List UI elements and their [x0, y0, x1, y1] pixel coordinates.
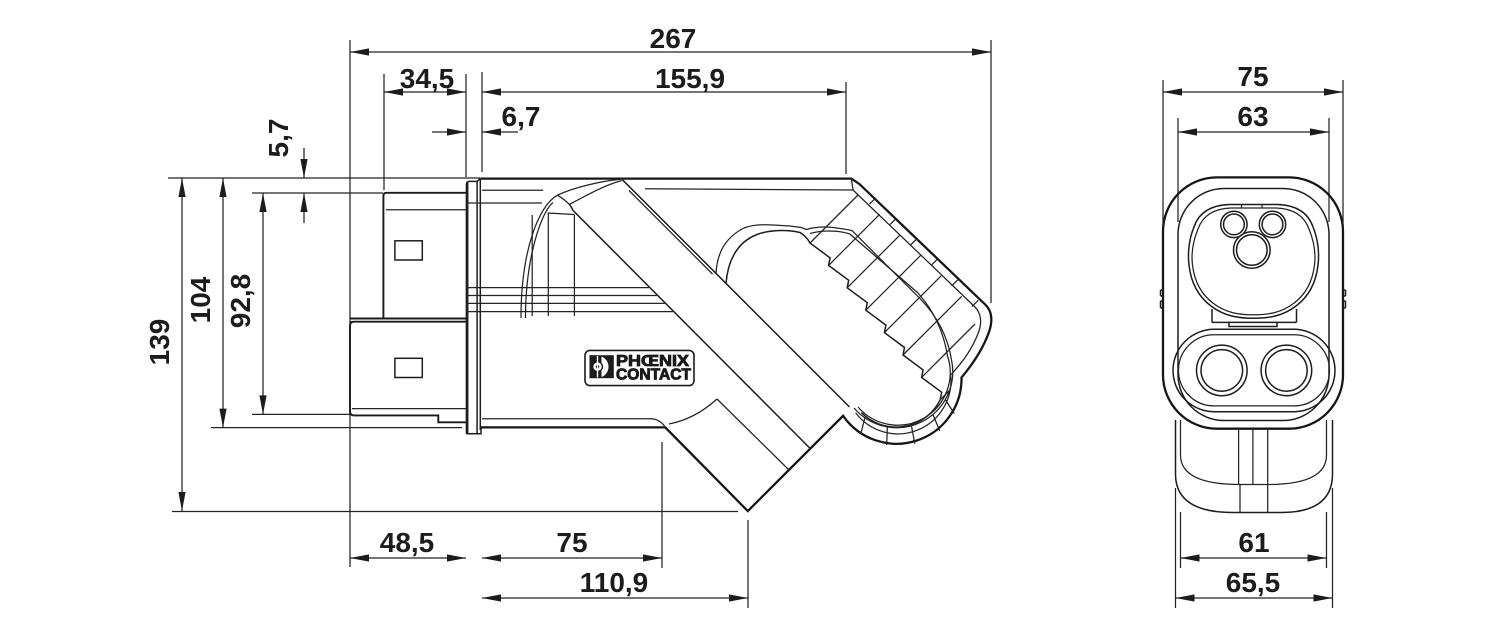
svg-text:75: 75: [1237, 61, 1268, 92]
svg-text:6,7: 6,7: [502, 101, 541, 132]
svg-text:61: 61: [1238, 527, 1269, 558]
svg-text:63: 63: [1237, 101, 1268, 132]
svg-text:104: 104: [185, 276, 216, 323]
svg-text:48,5: 48,5: [380, 527, 435, 558]
svg-text:75: 75: [556, 527, 587, 558]
svg-text:CONTACT: CONTACT: [616, 367, 691, 384]
svg-text:110,9: 110,9: [580, 567, 649, 598]
svg-text:155,9: 155,9: [655, 63, 725, 94]
svg-text:65,5: 65,5: [1226, 567, 1281, 598]
svg-text:139: 139: [144, 319, 175, 366]
svg-text:267: 267: [650, 23, 697, 54]
svg-text:5,7: 5,7: [263, 119, 294, 158]
svg-text:34,5: 34,5: [400, 63, 455, 94]
svg-text:92,8: 92,8: [225, 274, 256, 329]
